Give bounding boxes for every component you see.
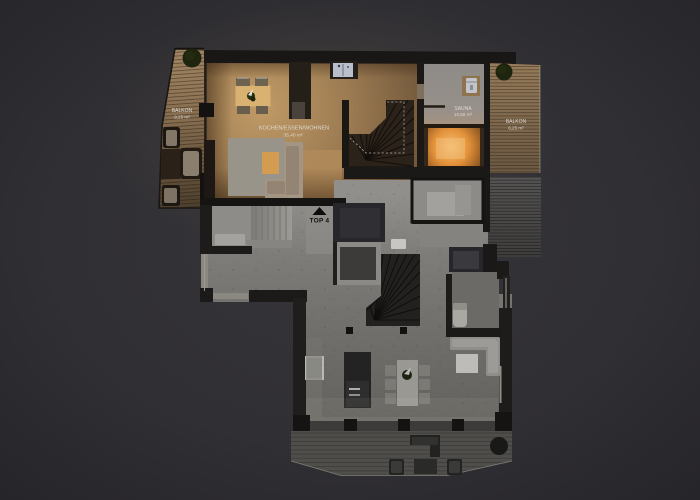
svg-text:35,40 m²: 35,40 m² (284, 133, 303, 139)
svg-text:9,25 m²: 9,25 m² (174, 115, 190, 120)
svg-text:TOP 4: TOP 4 (310, 218, 330, 225)
svg-text:10,58 m²: 10,58 m² (454, 112, 473, 117)
svg-text:BALKON: BALKON (506, 119, 527, 125)
svg-text:6,25 m²: 6,25 m² (508, 126, 524, 131)
svg-text:KOCHEN/ESSEN/WOHNEN: KOCHEN/ESSEN/WOHNEN (259, 126, 329, 132)
svg-text:BALKON: BALKON (172, 108, 193, 114)
